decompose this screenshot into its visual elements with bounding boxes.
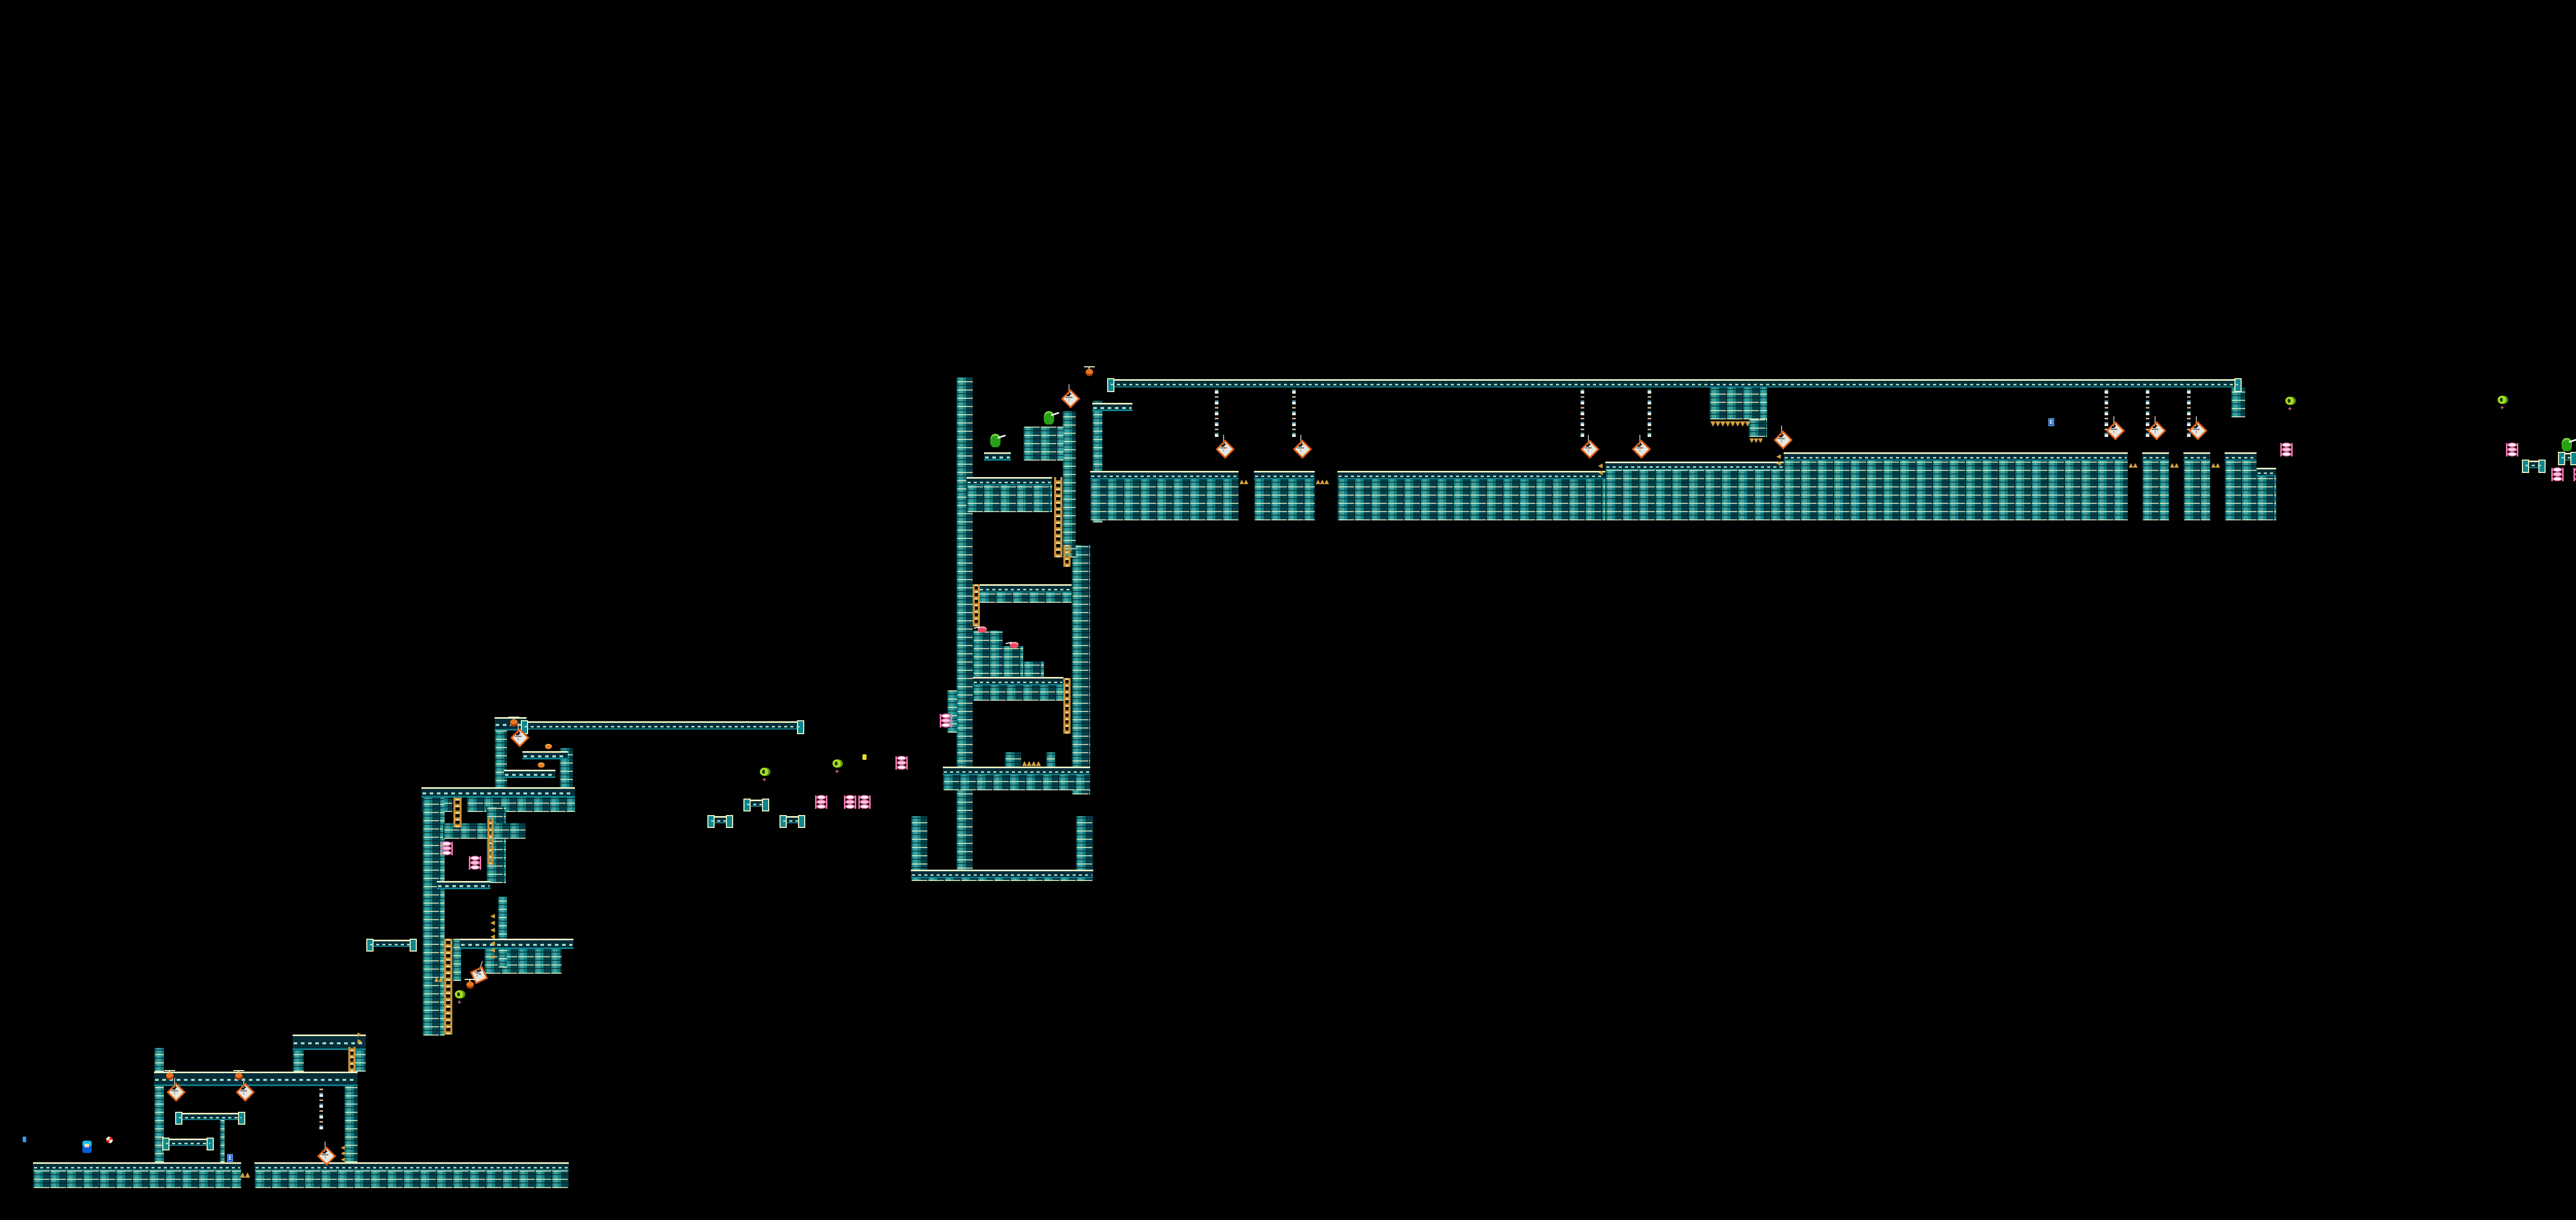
hanging-chain	[319, 1088, 323, 1129]
spikes-down: ▼▼▼▼▼▼▼▼	[1710, 419, 1766, 428]
danger-sign-text: DANGER	[239, 1090, 248, 1092]
danger-sign-text: DANGER	[1635, 447, 1645, 449]
spikes-left: ◀ ◀	[1776, 453, 1784, 467]
danger-sign: DANGER!	[237, 1084, 250, 1097]
floor-surface	[2225, 452, 2257, 461]
rail-cap	[726, 815, 733, 828]
danger-sign-text: DANGER	[2192, 428, 2201, 430]
level-map: ▲▲◀ ◀ ◀▶ ▶◀ ◀ ◀ ◀ ◀ ◀ ◀▲▲▲▲▲▲▲▲▲▲▲▼▼▼▼▼▼…	[0, 0, 2576, 1220]
danger-sign: DANGER!	[1217, 441, 1230, 454]
rail-cap	[2234, 378, 2242, 392]
danger-sign-text: DANGER	[1064, 396, 1074, 398]
enemy-footholder	[2285, 397, 2296, 405]
ladder	[1063, 678, 1071, 734]
enemy-blader	[235, 1073, 243, 1080]
item-pink-stack	[2506, 443, 2518, 456]
enemy-met	[538, 763, 545, 768]
danger-sign-diamond	[2106, 421, 2125, 440]
spikes-left: ◀ ◀ ◀	[341, 1145, 347, 1162]
hanging-chain	[1292, 387, 1296, 437]
danger-sign-text: DANGER	[320, 1154, 330, 1156]
lift-rail	[709, 816, 732, 823]
rail-cap	[238, 1112, 245, 1125]
enemy-footholder	[760, 768, 770, 776]
girder-band	[1092, 403, 1132, 411]
item-energy-tank: E	[227, 1154, 233, 1162]
danger-sign: DANGER!	[1294, 441, 1308, 454]
danger-sign: DANGER!	[1062, 391, 1076, 404]
danger-sign: DANGER!	[168, 1084, 181, 1097]
lift-rail	[745, 800, 768, 807]
tile-brick-block	[293, 1050, 304, 1072]
item-pink-stack	[2573, 468, 2576, 481]
danger-sign-mark: !	[2154, 431, 2156, 434]
spikes-up: ▲▲	[240, 1171, 256, 1179]
tile-floor	[1090, 471, 1239, 520]
item-pink-stack	[2551, 468, 2564, 481]
danger-sign-text: DANGER	[514, 735, 523, 737]
tile-brick-block	[219, 1119, 225, 1162]
lift-rail	[2523, 461, 2544, 468]
spikes-up: ▲▲	[2170, 462, 2183, 469]
tile-floor	[979, 584, 1072, 603]
enemy-met	[545, 744, 552, 749]
spikes-down: ▼▼▼	[1750, 437, 1766, 444]
ladder	[444, 939, 452, 1035]
tile-brick-block	[1005, 752, 1021, 768]
floor-surface	[1254, 471, 1315, 479]
girder-band	[504, 770, 555, 778]
danger-sign-diamond	[2189, 421, 2208, 440]
hanging-chain	[1648, 387, 1651, 437]
tile-brick-block	[1062, 411, 1076, 557]
danger-sign: DANGER!	[2148, 422, 2162, 436]
item-pink-stack	[858, 795, 871, 809]
danger-sign-diamond	[1216, 440, 1235, 459]
girder-band	[522, 751, 568, 759]
tile-floor	[255, 1162, 569, 1188]
spikes-up: ▲▲▲▲	[1022, 759, 1048, 767]
danger-sign-mark: !	[2113, 431, 2115, 434]
lift-rail	[781, 816, 804, 823]
girder-band	[984, 452, 1011, 461]
tile-brick-block	[1072, 545, 1090, 794]
danger-sign-diamond	[1061, 389, 1080, 409]
floor-surface	[967, 477, 1052, 485]
danger-sign: DANGER!	[512, 730, 525, 743]
tile-floor	[2225, 452, 2257, 520]
floor-surface	[973, 677, 1063, 685]
enemy-bunby-heli	[1010, 642, 1019, 648]
floor-surface	[979, 584, 1072, 592]
danger-sign-text: DANGER	[170, 1090, 179, 1092]
enemy-blader	[510, 719, 518, 726]
danger-sign-diamond	[1774, 431, 1793, 450]
ladder	[1054, 477, 1062, 557]
rail-cap	[410, 939, 417, 952]
spikes-left: ◀ ◀ ◀ ◀ ◀ ◀ ◀	[490, 913, 498, 958]
floor-surface	[1090, 471, 1239, 479]
danger-sign: DANGER!	[1633, 441, 1647, 454]
danger-sign-mark: !	[517, 738, 519, 741]
floor-surface	[33, 1162, 241, 1171]
spikes-right: ▶ ▶	[358, 1031, 365, 1047]
girder-band	[460, 939, 573, 949]
spikes-up: ▲▲	[2129, 462, 2142, 469]
item-energy-tank: E	[2048, 418, 2054, 426]
tile-brick-block	[467, 798, 575, 812]
floor-surface	[2142, 452, 2169, 461]
hanging-chain	[1581, 387, 1584, 437]
girder-band	[421, 787, 575, 798]
danger-sign-mark: !	[174, 1092, 176, 1096]
danger-sign-diamond	[2147, 421, 2166, 440]
tile-brick-block	[956, 377, 973, 877]
tile-floor	[2142, 452, 2169, 520]
floor-surface	[1605, 462, 1784, 470]
tile-floor	[2257, 468, 2276, 520]
tile-floor	[2183, 452, 2210, 520]
enemy-footholder	[455, 990, 465, 998]
enemy-footholder	[833, 759, 843, 768]
danger-sign-diamond	[1293, 440, 1312, 459]
enemy-footholder	[2498, 396, 2508, 404]
floor-surface	[1337, 471, 1605, 479]
danger-sign-mark: !	[324, 1156, 326, 1160]
rail-cap	[798, 815, 805, 828]
danger-sign-mark: !	[1300, 449, 1302, 453]
danger-sign-text: DANGER	[1777, 437, 1786, 439]
lift-rail	[368, 940, 415, 947]
floor-surface	[2183, 452, 2210, 461]
lift-rail	[164, 1139, 212, 1146]
lift-rail	[522, 721, 803, 730]
tile-brick-block	[1709, 387, 1767, 419]
ladder	[487, 818, 494, 865]
tile-floor	[1784, 452, 2128, 520]
ladder	[1063, 545, 1071, 567]
floor-surface	[1784, 452, 2128, 461]
danger-sign-text: DANGER	[2150, 428, 2160, 430]
danger-sign-diamond	[1632, 440, 1651, 459]
item-pink-stack	[440, 842, 453, 855]
tile-brick-block	[154, 1048, 164, 1072]
tile-brick-block	[1023, 427, 1063, 461]
floor-surface	[2257, 468, 2276, 476]
floor-surface	[943, 767, 1090, 775]
danger-sign-mark: !	[1639, 449, 1641, 453]
danger-sign: DANGER!	[1582, 441, 1595, 454]
item-pink-stack	[940, 714, 952, 727]
danger-sign-diamond	[470, 967, 488, 985]
item-pink-stack	[844, 795, 856, 809]
tile-floor	[967, 477, 1052, 512]
tile-floor	[1337, 471, 1605, 520]
danger-sign-mark: !	[243, 1092, 245, 1096]
girder-band	[154, 1072, 358, 1086]
item-pink-stack	[2280, 443, 2293, 456]
spikes-up: ▲▲▲	[1316, 478, 1336, 485]
tile-floor	[1254, 471, 1315, 520]
item-blue-pellet	[23, 1137, 26, 1142]
enemy-picketman	[1044, 411, 1054, 425]
danger-sign: DANGER!	[2107, 422, 2121, 436]
rail-cap	[2538, 460, 2546, 473]
spikes-up: ▲▲	[1240, 478, 1253, 485]
spikes-up: ▲▲	[434, 976, 446, 983]
enemy-picketman	[990, 434, 1001, 447]
floor-surface	[911, 870, 1093, 878]
tile-brick-block	[498, 896, 507, 968]
tile-brick-block	[973, 631, 1003, 682]
enemy-blader	[166, 1073, 174, 1080]
danger-sign-mark: !	[1781, 440, 1783, 444]
spikes-left: ◀ ◀	[1598, 463, 1605, 476]
item-bolt	[862, 754, 867, 760]
danger-sign: DANGER!	[1775, 432, 1788, 445]
rail-cap	[207, 1138, 214, 1150]
enemy-pinwheel	[106, 1137, 113, 1143]
tile-floor	[33, 1162, 241, 1188]
item-pink-stack	[469, 856, 481, 870]
lift-rail	[177, 1113, 244, 1120]
hanging-chain	[1215, 387, 1218, 437]
spikes-up: ▲▲	[2211, 462, 2225, 469]
rail-cap	[762, 799, 769, 811]
floor-surface	[255, 1162, 569, 1171]
danger-sign-text: DANGER	[1584, 447, 1593, 449]
tile-floor	[973, 677, 1063, 701]
girder-band	[437, 881, 490, 889]
danger-sign-mark: !	[1068, 399, 1070, 402]
tile-floor	[943, 767, 1090, 790]
item-pink-stack	[815, 795, 827, 809]
danger-sign: DANGER!	[2190, 422, 2203, 436]
tile-brick-block	[495, 720, 507, 789]
tile-floor	[1605, 462, 1784, 520]
danger-sign-text: DANGER	[2109, 428, 2119, 430]
danger-sign-diamond	[1581, 440, 1600, 459]
lift-rail	[1109, 379, 2240, 387]
enemy-bunby-heli	[978, 626, 987, 633]
tile-brick-block	[422, 798, 445, 1036]
ladder	[973, 584, 980, 626]
danger-sign-mark: !	[1223, 449, 1225, 453]
danger-sign-mark: !	[2195, 431, 2197, 434]
rail-cap	[2570, 452, 2576, 465]
danger-sign: DANGER!	[318, 1148, 332, 1161]
danger-sign-text: DANGER	[1219, 447, 1228, 449]
tile-floor	[911, 870, 1093, 881]
rail-cap	[797, 720, 804, 734]
ladder	[348, 1047, 355, 1072]
danger-sign-mark: !	[1587, 449, 1589, 453]
lift-rail	[2560, 453, 2576, 461]
enemy-blader	[466, 981, 474, 989]
enemy-picketman	[2562, 438, 2572, 451]
player-megaman	[82, 1141, 92, 1153]
enemy-blader	[1086, 369, 1093, 376]
tile-brick-block	[354, 1050, 366, 1072]
item-pink-stack	[895, 756, 908, 770]
ladder	[453, 798, 462, 827]
danger-sign-text: DANGER	[1296, 447, 1306, 449]
